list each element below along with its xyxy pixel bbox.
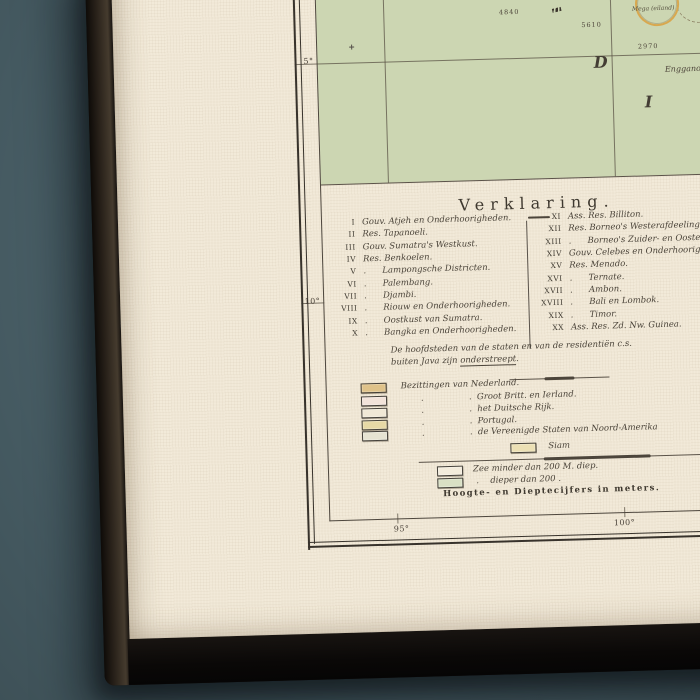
entry-numeral: XIX	[538, 309, 571, 322]
possession-label: Bezittingen van Nederland.	[401, 378, 520, 391]
entry-label: Res. Menado.	[569, 259, 628, 271]
entry-numeral: VII	[331, 290, 364, 303]
ocean-letter: I	[645, 92, 653, 111]
longitude-label: 100°	[608, 518, 640, 528]
entry-label: Res. Tapanoeli.	[362, 228, 428, 240]
possession-label: Portugal.	[478, 415, 518, 426]
latitude-label: 10°	[301, 297, 320, 307]
color-swatch	[361, 396, 387, 407]
note-plain: buiten Java zijn	[391, 356, 461, 368]
legend-column-right: XIAss. Res. Billiton. XIIRes. Borneo's W…	[535, 205, 700, 335]
legend-ornament	[509, 376, 609, 380]
ditto-mark: .	[470, 416, 473, 426]
entry-numeral: I	[329, 216, 362, 229]
underlined-term: onderstreept	[460, 354, 516, 367]
entry-numeral: XII	[535, 223, 568, 236]
possession-label: het Duitsche Rijk.	[477, 402, 554, 414]
ditto-mark: .	[422, 418, 425, 428]
legend-note-line2: buiten Java zijn onderstreept.	[391, 354, 519, 368]
depth-swatch	[437, 466, 463, 477]
entry-numeral: VI	[331, 278, 364, 291]
entry-numeral: XX	[538, 322, 571, 335]
entry-label: . Timor.	[571, 309, 618, 320]
depth-sounding: 4840	[489, 8, 529, 17]
color-swatch	[510, 443, 536, 454]
entry-label: Ass. Res. Billiton.	[568, 209, 644, 221]
entry-label: Res. Benkoelen.	[363, 252, 432, 264]
legend-note-line1: De hoofdsteden van de staten en van de r…	[391, 339, 633, 356]
entry-label: . Ternate.	[570, 272, 625, 284]
possession-label: Groot Britt. en Ierland.	[477, 389, 577, 402]
entry-label: . Riouw en Onderhoorigheden.	[364, 300, 510, 314]
ocean-letter: D	[593, 52, 607, 71]
depth-swatch	[437, 478, 463, 489]
ditto-mark: .	[422, 429, 425, 439]
wall-background: { "scene": { "wall_color": "#4c636b", "c…	[0, 0, 700, 700]
ditto-mark: .	[421, 394, 424, 404]
note-period: .	[516, 354, 519, 364]
entry-numeral: XVII	[537, 285, 570, 298]
ditto-mark: .	[476, 476, 479, 486]
entry-label: . Lampongsche Districten.	[363, 263, 490, 277]
color-swatch	[362, 431, 388, 442]
entry-numeral: XIV	[536, 248, 569, 261]
entry-label: Gouv. Celebes en Onderhoorigheden.	[569, 244, 700, 258]
entry-numeral: II	[329, 229, 362, 242]
entry-label: . Bangka en Onderhoorigheden.	[365, 324, 517, 338]
ditto-mark: .	[469, 392, 472, 402]
color-swatch	[361, 383, 387, 394]
possession-label: Siam	[548, 441, 570, 452]
entry-label: Ass. Res. Zd. Nw. Guinea.	[571, 320, 682, 333]
entry-numeral: IV	[330, 253, 363, 266]
canvas-front: 4840 5610 2970 Mega (eiland) D I Enggano…	[110, 0, 700, 639]
map-frame-bottom	[329, 508, 700, 522]
entry-numeral: IX	[332, 315, 365, 328]
sounding-cross-mark	[349, 45, 354, 50]
color-swatch	[362, 420, 388, 431]
island-label: Enggano	[665, 64, 700, 74]
entry-label: Gouv. Sumatra's Westkust.	[363, 239, 478, 252]
entry-numeral: III	[330, 241, 363, 254]
sea-area	[315, 0, 700, 184]
entry-label: . Bali en Lombok.	[570, 295, 659, 307]
depth-sounding: 2970	[628, 42, 668, 51]
entry-label: . Ambon.	[570, 284, 622, 295]
entry-numeral: XVI	[537, 272, 570, 285]
ditto-mark: .	[470, 427, 473, 437]
ditto-mark: .	[421, 406, 424, 416]
entry-numeral: XVIII	[537, 297, 570, 310]
entry-numeral: X	[332, 327, 365, 340]
entry-numeral: XIII	[536, 235, 569, 248]
legend-column-left: IGouv. Atjeh en Onderhoorigheden. IIRes.…	[329, 212, 537, 341]
depth-label: dieper dan 200 .	[490, 474, 561, 486]
color-swatch	[361, 408, 387, 419]
entry-numeral: XV	[536, 260, 569, 273]
canvas-print: 4840 5610 2970 Mega (eiland) D I Enggano…	[84, 0, 700, 686]
latitude-label: 5°	[294, 57, 313, 67]
map-print: 4840 5610 2970 Mega (eiland) D I Enggano…	[292, 0, 700, 554]
depth-sounding: 5610	[572, 20, 612, 29]
entry-numeral: XI	[535, 211, 568, 224]
entry-label: . Djambi.	[364, 290, 417, 301]
depth-label: Zee minder dan 200 M. diep.	[473, 461, 598, 474]
entry-label: . Palembang.	[364, 277, 434, 289]
ditto-mark: .	[469, 404, 472, 414]
longitude-label: 95°	[386, 524, 418, 534]
entry-numeral: V	[330, 266, 363, 279]
entry-numeral: VIII	[331, 303, 364, 316]
